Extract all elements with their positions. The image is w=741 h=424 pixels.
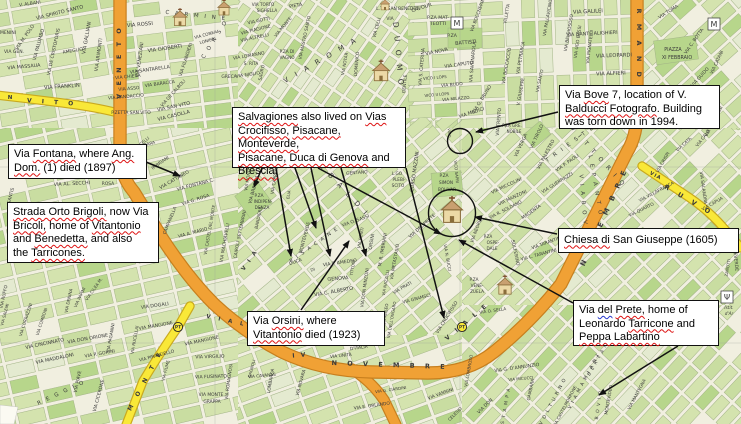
callout-line: Vitantonio died (1923)	[253, 329, 379, 343]
city-block	[540, 76, 554, 100]
city-block	[481, 18, 504, 32]
poi-icon: Ψ	[721, 291, 733, 303]
city-block	[405, 22, 428, 36]
street-label: VENE-	[471, 283, 484, 288]
callout-line: and Benedetta, and also	[13, 233, 153, 247]
city-block	[483, 51, 506, 65]
callout-via-fontana: Via Fontana, where Ang.Dom. (1) died (18…	[8, 144, 147, 179]
poi-icon: M	[451, 17, 463, 29]
street-label: GRECA	[221, 74, 236, 80]
road-label: A R M A N D O	[635, 0, 643, 97]
post-office-badge: PT	[457, 322, 466, 331]
callout-line: Strada Orto Brigoli, now Via	[13, 206, 153, 220]
street-label: SCITO	[392, 183, 405, 188]
city-block	[435, 103, 458, 117]
city-block	[603, 0, 617, 15]
street-label: VIA ALFIERI	[596, 70, 626, 77]
callout-via-orsini: Via Orsini, whereVitantonio died (1923)	[247, 311, 385, 346]
street-label: P.ZA MAT-	[427, 15, 449, 21]
street-label: VIA GEN.	[4, 49, 24, 55]
city-block	[521, 0, 535, 18]
callout-line: Via del Prete, home of	[579, 304, 713, 318]
city-block	[486, 100, 509, 114]
street-label: NOBILE	[507, 129, 522, 134]
callout-line: Leonardo Tarricone and	[579, 318, 713, 332]
street-label: VICO	[447, 128, 453, 138]
street-label: XI FEBBRAIO	[662, 55, 692, 61]
callout-salvagiones: Salvagiones also lived on ViasCrocifisso…	[232, 107, 406, 168]
svg-text:M: M	[454, 19, 461, 28]
callout-line: was torn down in 1994.	[565, 116, 714, 130]
callout-line: Chiesa di San Giuseppe (1605)	[564, 234, 718, 248]
svg-text:PT: PT	[459, 325, 465, 331]
city-block	[505, 22, 519, 46]
callout-line: Balducci Fotografo. Building	[565, 103, 714, 117]
callout-line: Salvagiones also lived on Vias	[238, 111, 400, 125]
callout-via-bove: Via Bove 7, location of V.Balducci Fotog…	[559, 85, 720, 129]
street-label: VIA TORTO	[252, 2, 275, 7]
callout-line: Bricoli, home of Vitantonio	[13, 220, 153, 234]
road-label: I V	[292, 351, 308, 359]
street-label: GRAPPA	[203, 399, 220, 405]
street-label: SIGHELLA	[257, 8, 278, 13]
callout-line: Brescia.	[238, 165, 400, 179]
street-label: VIA FUSINATO	[195, 373, 228, 380]
callout-line: Via Orsini, where	[253, 315, 379, 329]
svg-text:M: M	[711, 20, 718, 29]
annotated-city-map: V. ALBANIVIA SPIRITO SANTOVIA M. POLOVIA…	[0, 0, 741, 424]
street-label: VIA LEOPARDI	[596, 52, 633, 59]
street-label: P.ZA DI	[280, 49, 295, 54]
street-label: P.ZA	[255, 193, 264, 198]
callout-line: Peppa Labartino	[579, 331, 713, 345]
street-label: DALE	[487, 246, 498, 251]
street-label: S. RITA	[244, 61, 259, 66]
callout-line: Dom. (1) died (1897)	[14, 162, 141, 176]
callout-line: Via Bove 7, location of V.	[565, 89, 714, 103]
street-label: ROSA	[102, 181, 114, 187]
street-label: P.ZA	[447, 33, 458, 39]
callout-line: Crocifisso, Pisacane, Monteverde,	[238, 125, 400, 152]
road-label: V E N E T O	[115, 25, 123, 99]
svg-text:PT: PT	[175, 325, 181, 331]
callout-via-del-prete: Via del Prete, home ofLeonardo Tarricone…	[573, 300, 719, 346]
institute-caption: d'Ar	[725, 311, 734, 316]
street-label: OSPE-	[487, 240, 500, 245]
post-office-badge: PT	[173, 322, 182, 331]
street-label: P.ZA	[470, 277, 479, 282]
street-label: SIMON	[439, 180, 453, 185]
street-label: INDIPEN-	[254, 199, 273, 204]
street-label: VIA	[386, 16, 393, 22]
street-label: ZUELA	[470, 289, 484, 294]
city-block	[455, 3, 478, 17]
poi-icon: M	[708, 18, 720, 30]
street-label: MENINI	[0, 30, 16, 36]
street-label: VAGNO	[279, 55, 295, 60]
street-label: P.ZA	[440, 173, 449, 178]
city-block	[539, 48, 553, 72]
city-block	[409, 104, 432, 118]
city-block	[554, 0, 568, 17]
street-label: P.ZETTA SAN VITO	[111, 110, 151, 116]
institute-caption: Istit.	[724, 305, 733, 310]
callout-strada-orto-brigoli: Strada Orto Brigoli, now ViaBricoli, hom…	[7, 202, 159, 263]
callout-line: Via Fontana, where Ang.	[14, 148, 141, 162]
street-label: VIA VIRGILIO	[195, 353, 225, 360]
street-label: PIAZZA	[664, 47, 682, 53]
svg-text:Ψ: Ψ	[724, 293, 730, 302]
street-label: P.ZA	[484, 234, 493, 239]
callout-chiesa-san-giuseppe: Chiesa di San Giuseppe (1605)	[558, 228, 739, 253]
callout-line: the Tarricones.	[13, 247, 153, 261]
city-block	[482, 34, 505, 48]
street-label: TEOTTI	[429, 21, 446, 27]
road-label: N	[8, 95, 13, 101]
street-label: VIA MONTE	[199, 392, 224, 398]
callout-line: Pisacane, Duca di Genova and	[238, 152, 400, 166]
